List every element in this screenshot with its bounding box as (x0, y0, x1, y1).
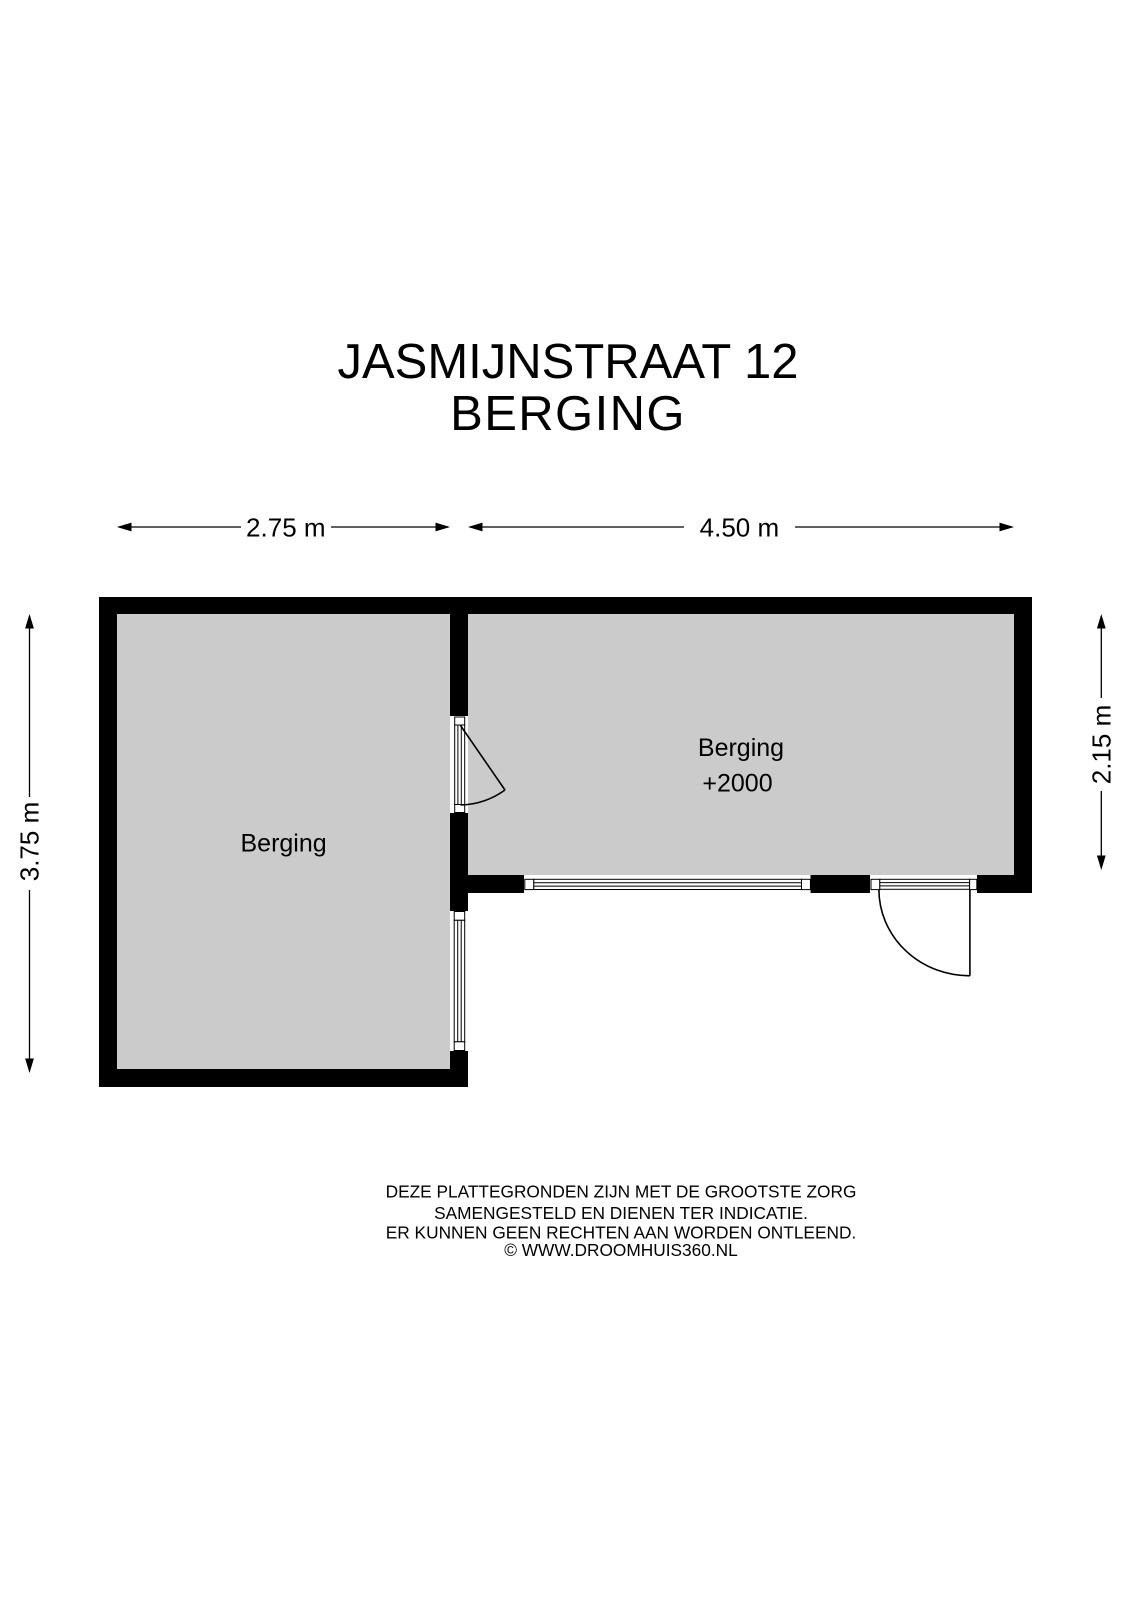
svg-text:4.50 m: 4.50 m (700, 513, 780, 543)
svg-text:DEZE PLATTEGRONDEN ZIJN MET DE: DEZE PLATTEGRONDEN ZIJN MET DE GROOTSTE … (386, 1182, 857, 1202)
svg-text:2.75 m: 2.75 m (246, 513, 326, 543)
svg-text:Berging: Berging (241, 830, 327, 858)
svg-text:JASMIJNSTRAAT 12: JASMIJNSTRAAT 12 (337, 335, 798, 389)
svg-text:2.15 m: 2.15 m (1086, 705, 1116, 785)
svg-text:SAMENGESTELD EN DIENEN TER IND: SAMENGESTELD EN DIENEN TER INDICATIE. (434, 1203, 808, 1223)
svg-text:© WWW.DROOMHUIS360.NL: © WWW.DROOMHUIS360.NL (504, 1240, 738, 1260)
svg-text:3.75 m: 3.75 m (15, 802, 45, 882)
svg-text:+2000: +2000 (702, 770, 772, 798)
svg-text:Berging: Berging (698, 734, 784, 762)
svg-text:BERGING: BERGING (450, 387, 686, 441)
